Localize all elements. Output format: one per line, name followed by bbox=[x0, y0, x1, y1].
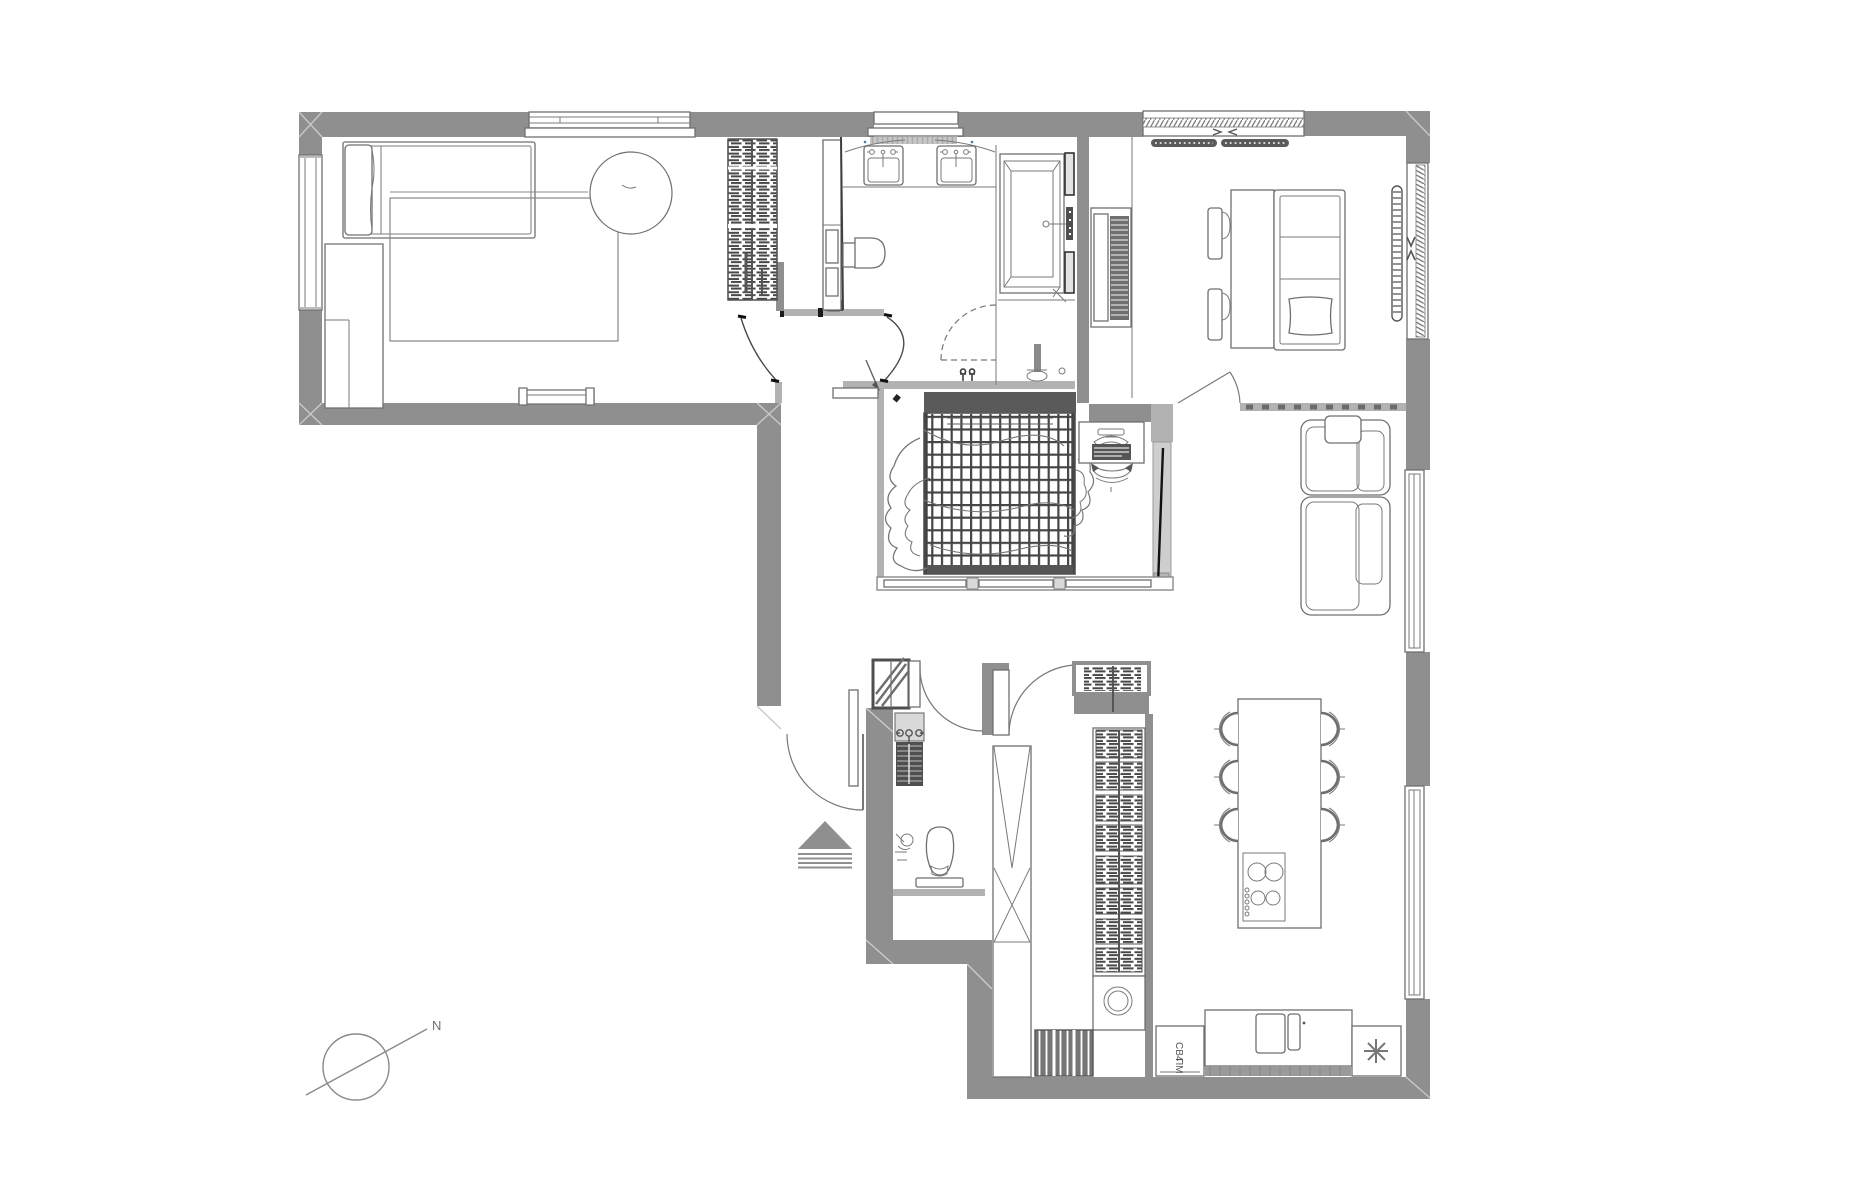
svg-text:ПM: ПM bbox=[1173, 1058, 1184, 1074]
svg-text:N: N bbox=[432, 1018, 441, 1033]
